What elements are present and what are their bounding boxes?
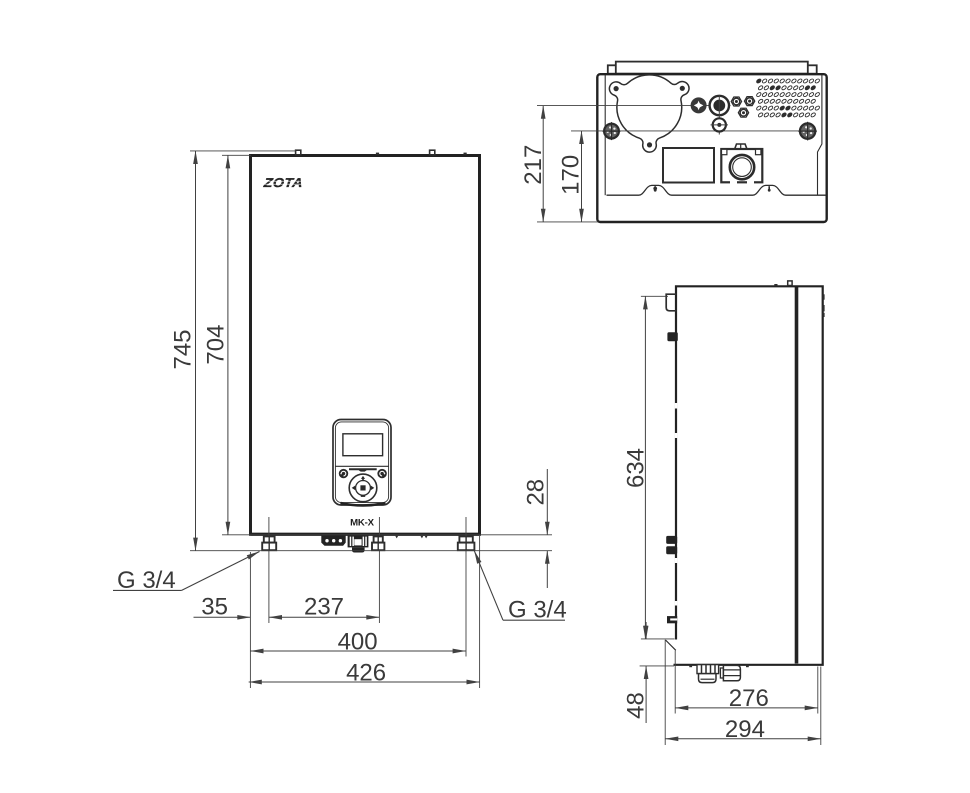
svg-text:MK-X: MK-X [350,518,375,529]
svg-text:237: 237 [304,594,344,621]
svg-text:ZOTA: ZOTA [262,175,304,190]
svg-text:745: 745 [169,329,196,369]
svg-text:28: 28 [522,479,549,506]
svg-text:35: 35 [201,594,228,621]
svg-text:G 3/4: G 3/4 [508,597,567,624]
svg-text:276: 276 [729,685,769,712]
svg-text:634: 634 [623,448,650,488]
svg-text:400: 400 [338,628,378,655]
svg-text:426: 426 [346,659,386,686]
svg-text:294: 294 [725,716,765,743]
svg-text:48: 48 [623,692,650,719]
svg-text:170: 170 [557,155,584,195]
svg-text:217: 217 [520,145,547,185]
svg-text:704: 704 [203,325,230,365]
